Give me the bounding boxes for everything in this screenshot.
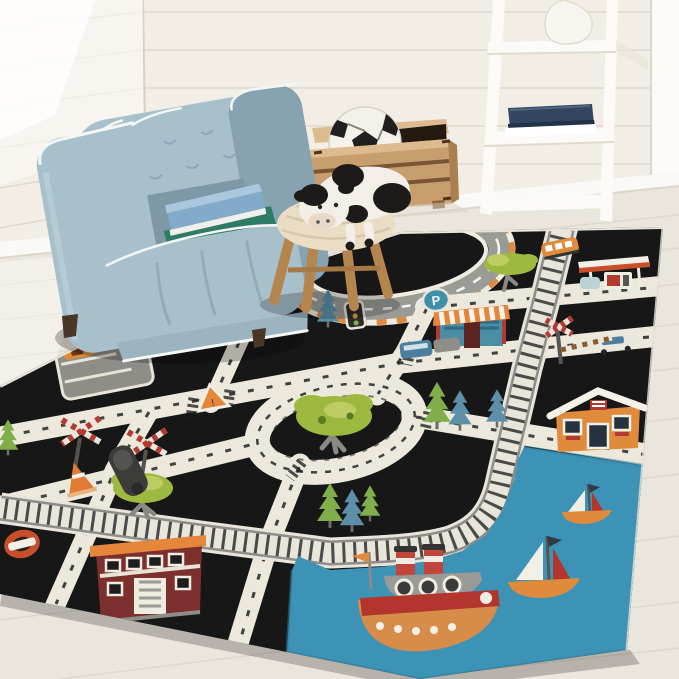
stool-stretcher [288, 268, 380, 270]
cow-ear [294, 190, 310, 202]
shelf-books [505, 104, 596, 137]
playroom-scene: ! P [0, 0, 679, 679]
car-at-station [580, 277, 600, 289]
scene-canvas: ! P [0, 0, 679, 679]
chair-foot [252, 328, 266, 348]
fire-station [90, 535, 206, 622]
cow-ear [338, 182, 354, 194]
cow-muzzle [308, 213, 336, 229]
chair-foot [62, 314, 78, 338]
door-trim-panel [651, 0, 679, 190]
